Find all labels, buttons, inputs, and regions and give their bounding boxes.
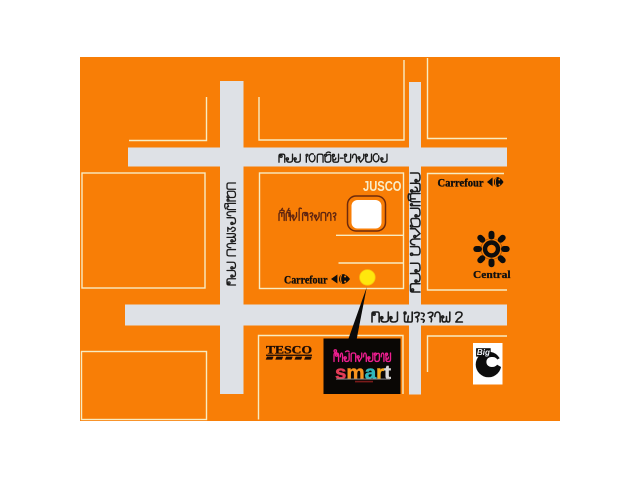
svg-text:Big: Big bbox=[477, 348, 490, 357]
svg-text:Carrefour: Carrefour bbox=[438, 178, 484, 190]
svg-text:TESCO: TESCO bbox=[266, 343, 312, 357]
svg-text:Central: Central bbox=[473, 269, 511, 281]
svg-text:JUSCO: JUSCO bbox=[363, 179, 402, 195]
svg-text:Carrefour: Carrefour bbox=[284, 275, 328, 287]
